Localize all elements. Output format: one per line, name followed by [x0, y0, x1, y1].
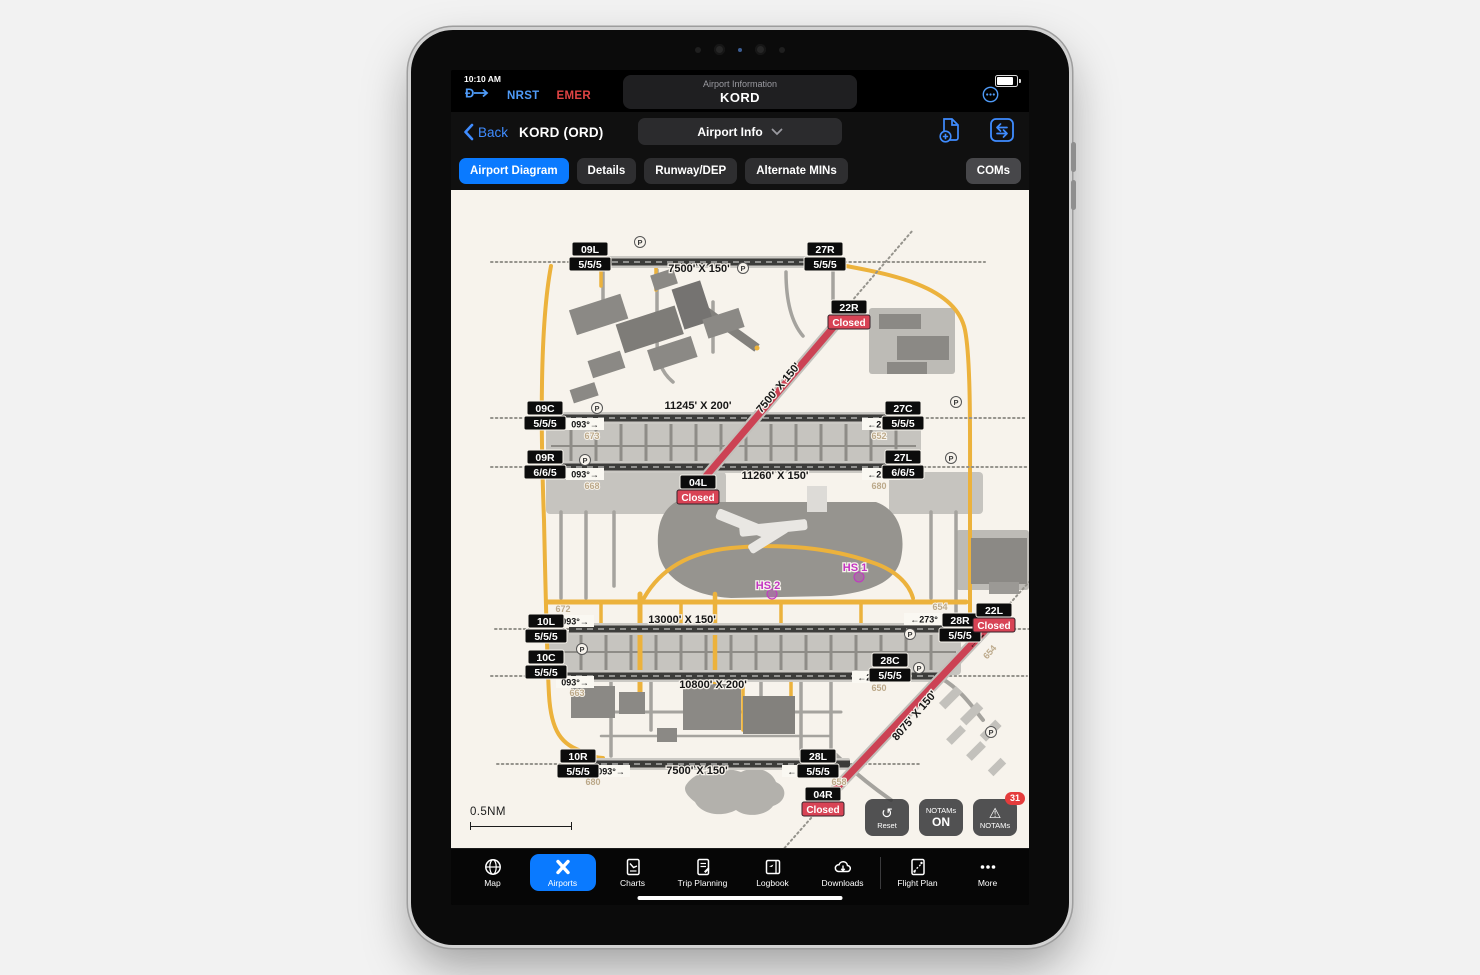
svg-text:6/6/5: 6/6/5	[533, 467, 557, 479]
app-screen: 10:10 AM Đ NRST EMER Airport Information	[451, 70, 1029, 905]
svg-text:7500' X 150': 7500' X 150'	[666, 765, 728, 777]
notams-count-badge: 31	[1005, 792, 1025, 805]
svg-text:27R: 27R	[815, 244, 835, 256]
svg-text:22R: 22R	[839, 302, 859, 314]
scale-label: 0.5NM	[470, 806, 572, 818]
svg-text:13000' X 150': 13000' X 150'	[648, 614, 716, 626]
svg-text:10R: 10R	[568, 751, 588, 763]
tab-trip-planning[interactable]: Trip Planning	[670, 854, 736, 891]
svg-text:672: 672	[555, 604, 570, 614]
label-27r: 27R 5/5/5	[804, 242, 846, 271]
hotspot-hs2: HS 2	[756, 580, 780, 592]
svg-text:10800' X 200': 10800' X 200'	[679, 679, 747, 691]
tab-airport-diagram[interactable]: Airport Diagram	[459, 158, 569, 184]
label-04r: 04R Closed	[802, 787, 844, 816]
svg-text:5/5/5: 5/5/5	[806, 766, 830, 778]
globe-icon	[483, 858, 503, 876]
svg-text:28R: 28R	[950, 615, 970, 627]
tab-map[interactable]: Map	[460, 854, 526, 891]
view-tabs: Airport Diagram Details Runway/DEP Alter…	[451, 152, 1029, 190]
tab-downloads[interactable]: Downloads	[810, 854, 876, 891]
reset-icon: ↺	[881, 806, 893, 820]
svg-text:5/5/5: 5/5/5	[948, 630, 972, 642]
navigation-bar: Back KORD (ORD) Airport Info	[451, 112, 1029, 152]
add-procedure-icon[interactable]	[938, 116, 962, 148]
clock: 10:10 AM	[464, 74, 501, 84]
svg-text:7500' X 150': 7500' X 150'	[754, 360, 803, 415]
warning-triangle-icon: ⚠	[989, 806, 1002, 820]
svg-text:P: P	[582, 456, 587, 465]
label-27c: 27C 5/5/5	[882, 401, 924, 430]
home-indicator[interactable]	[638, 896, 843, 901]
back-button[interactable]: Back	[463, 123, 508, 141]
front-camera-array	[411, 44, 1069, 55]
map-controls: ↺ Reset NOTAMs ON ⚠ NOTAMs 31	[865, 799, 1017, 836]
nearest-button[interactable]: NRST	[507, 90, 540, 102]
label-04l: 04L Closed	[677, 475, 719, 504]
svg-text:11245' X 200': 11245' X 200'	[664, 400, 731, 412]
emergency-button[interactable]: EMER	[557, 90, 591, 102]
label-28l: 28L 5/5/5	[797, 749, 839, 778]
label-27l: 27L 6/6/5	[882, 450, 924, 479]
tab-airports[interactable]: Airports	[530, 854, 596, 891]
tab-flight-plan[interactable]: Flight Plan	[885, 854, 951, 891]
svg-text:7500' X 150': 7500' X 150'	[668, 263, 730, 275]
chevron-down-icon	[771, 128, 783, 136]
label-09r: 09R 6/6/5	[524, 450, 566, 479]
scale-bar: 0.5NM	[470, 806, 572, 830]
coms-button[interactable]: COMs	[966, 158, 1021, 184]
label-10c: 10C 5/5/5	[525, 650, 567, 679]
notams-toggle-button[interactable]: NOTAMs ON	[919, 799, 963, 836]
logbook-icon	[763, 858, 783, 876]
svg-text:22L: 22L	[985, 605, 1004, 617]
cloud-download-icon	[832, 858, 854, 876]
svg-text:5/5/5: 5/5/5	[891, 418, 915, 430]
airport-diagram-svg: 7500' X 150' 11245' X 200' 11260' X 150'…	[451, 190, 1029, 848]
label-22r: 22R Closed	[828, 300, 870, 329]
svg-text:654: 654	[932, 602, 947, 612]
svg-text:093°→: 093°→	[571, 470, 599, 480]
send-to-icon[interactable]	[989, 117, 1015, 148]
airport-title: KORD (ORD)	[519, 125, 604, 140]
svg-text:28C: 28C	[880, 655, 900, 667]
svg-text:P: P	[594, 404, 599, 413]
svg-text:5/5/5: 5/5/5	[578, 259, 602, 271]
view-selector-dropdown[interactable]: Airport Info	[638, 118, 842, 145]
svg-text:5/5/5: 5/5/5	[878, 670, 902, 682]
svg-text:04L: 04L	[689, 477, 708, 489]
svg-text:673: 673	[584, 431, 599, 441]
svg-text:5/5/5: 5/5/5	[566, 766, 590, 778]
svg-text:Closed: Closed	[832, 318, 865, 329]
tab-logbook[interactable]: Logbook	[740, 854, 806, 891]
hotspot-hs1: HS 1	[843, 562, 867, 574]
svg-text:5/5/5: 5/5/5	[533, 418, 557, 430]
svg-text:668: 668	[584, 481, 599, 491]
tab-alternate-mins[interactable]: Alternate MINs	[745, 158, 848, 184]
flight-plan-icon	[908, 858, 928, 876]
toolbar-divider	[880, 857, 881, 889]
reset-button[interactable]: ↺ Reset	[865, 799, 909, 836]
svg-text:Closed: Closed	[681, 493, 714, 504]
svg-text:09L: 09L	[581, 244, 600, 256]
svg-text:6/6/5: 6/6/5	[891, 467, 915, 479]
svg-text:P: P	[740, 264, 745, 273]
label-10r: 10R 5/5/5	[557, 749, 599, 778]
label-28c: 28C 5/5/5	[869, 653, 911, 682]
svg-text:093°→: 093°→	[561, 617, 589, 627]
trip-planning-icon	[693, 858, 713, 876]
airport-information-header[interactable]: Airport Information KORD	[623, 75, 857, 109]
svg-text:652: 652	[871, 431, 886, 441]
volume-down-button	[1071, 180, 1076, 210]
svg-text:654: 654	[981, 643, 998, 661]
svg-text:093°→: 093°→	[597, 767, 625, 777]
status-bar: 10:10 AM Đ NRST EMER Airport Information	[451, 70, 1029, 112]
svg-text:Đ: Đ	[465, 86, 474, 101]
scale-line	[470, 822, 572, 830]
svg-text:663: 663	[569, 688, 584, 698]
back-chevron-icon	[463, 123, 474, 141]
airport-diagram-map[interactable]: 7500' X 150' 11245' X 200' 11260' X 150'…	[451, 190, 1029, 848]
svg-text:09C: 09C	[535, 403, 555, 415]
svg-text:P: P	[988, 728, 993, 737]
svg-text:5/5/5: 5/5/5	[534, 631, 558, 643]
svg-text:P: P	[953, 398, 958, 407]
notams-list-button[interactable]: ⚠ NOTAMs 31	[973, 799, 1017, 836]
status-ellipsis-icon[interactable]	[982, 86, 999, 108]
label-09l: 09L 5/5/5	[569, 242, 611, 271]
page-background: 10:10 AM Đ NRST EMER Airport Information	[0, 0, 1480, 975]
svg-text:P: P	[916, 664, 921, 673]
svg-text:P: P	[907, 630, 912, 639]
airports-runways-icon	[553, 858, 573, 876]
volume-up-button	[1071, 142, 1076, 172]
tab-more[interactable]: More	[955, 854, 1021, 891]
svg-text:27L: 27L	[894, 452, 913, 464]
svg-text:←273°: ←273°	[910, 615, 938, 625]
svg-text:09R: 09R	[535, 452, 555, 464]
ipad-device: 10:10 AM Đ NRST EMER Airport Information	[411, 30, 1069, 945]
bottom-toolbar: Map Airports	[451, 848, 1029, 905]
tab-details[interactable]: Details	[577, 158, 637, 184]
label-09c: 09C 5/5/5	[524, 401, 566, 430]
svg-text:10L: 10L	[537, 616, 556, 628]
charts-icon	[623, 858, 643, 876]
svg-text:P: P	[579, 645, 584, 654]
direct-to-icon[interactable]: Đ	[464, 85, 490, 106]
svg-text:Closed: Closed	[977, 621, 1010, 632]
header-title: Airport Information	[703, 79, 777, 89]
svg-text:5/5/5: 5/5/5	[534, 667, 558, 679]
svg-text:P: P	[637, 238, 642, 247]
more-ellipsis-icon	[978, 858, 998, 876]
svg-text:28L: 28L	[809, 751, 828, 763]
svg-text:650: 650	[871, 683, 886, 693]
svg-text:093°→: 093°→	[571, 420, 599, 430]
header-airport-code: KORD	[720, 90, 760, 105]
tab-charts[interactable]: Charts	[600, 854, 666, 891]
svg-text:27C: 27C	[893, 403, 913, 415]
svg-text:11260' X 150': 11260' X 150'	[741, 470, 808, 482]
label-10l: 10L 5/5/5	[525, 614, 567, 643]
label-22l: 22L Closed	[973, 603, 1015, 632]
svg-text:5/5/5: 5/5/5	[813, 259, 837, 271]
tab-runway-dep[interactable]: Runway/DEP	[644, 158, 737, 184]
svg-text:10C: 10C	[536, 652, 556, 664]
svg-text:04R: 04R	[813, 789, 833, 801]
svg-text:680: 680	[871, 481, 886, 491]
svg-text:Closed: Closed	[806, 805, 839, 816]
svg-text:P: P	[948, 454, 953, 463]
